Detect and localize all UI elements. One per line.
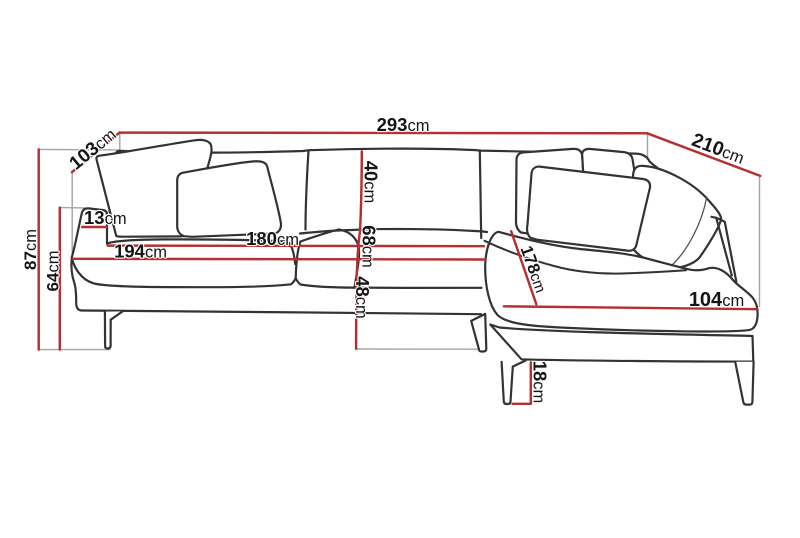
- svg-text:194cm: 194cm: [114, 241, 167, 262]
- svg-text:40cm: 40cm: [361, 161, 382, 204]
- svg-text:87cm: 87cm: [21, 229, 40, 270]
- svg-text:180cm: 180cm: [246, 228, 299, 249]
- svg-text:18cm: 18cm: [530, 361, 551, 404]
- svg-text:104cm: 104cm: [689, 289, 744, 311]
- svg-text:64cm: 64cm: [44, 251, 63, 292]
- svg-text:48cm: 48cm: [352, 276, 373, 319]
- svg-text:293cm: 293cm: [377, 114, 430, 135]
- svg-text:68cm: 68cm: [359, 225, 380, 268]
- svg-text:13cm: 13cm: [84, 207, 127, 228]
